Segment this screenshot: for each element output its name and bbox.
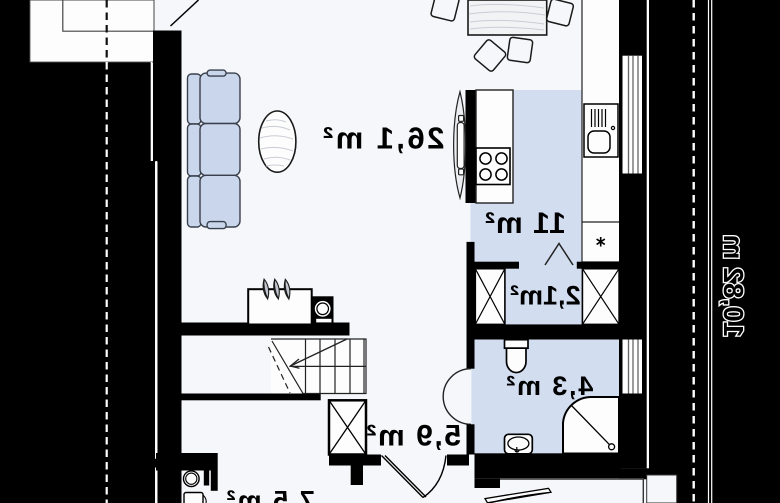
svg-text:2,1m²: 2,1m² (510, 280, 581, 310)
svg-text:10,82 m: 10,82 m (718, 235, 749, 338)
svg-text:26,1 m²: 26,1 m² (321, 121, 445, 156)
svg-text:11 m²: 11 m² (484, 207, 566, 240)
svg-text:5,9 m²: 5,9 m² (365, 420, 461, 453)
svg-text:7,5 m²: 7,5 m² (225, 486, 315, 503)
svg-text:4,3 m²: 4,3 m² (505, 371, 594, 401)
